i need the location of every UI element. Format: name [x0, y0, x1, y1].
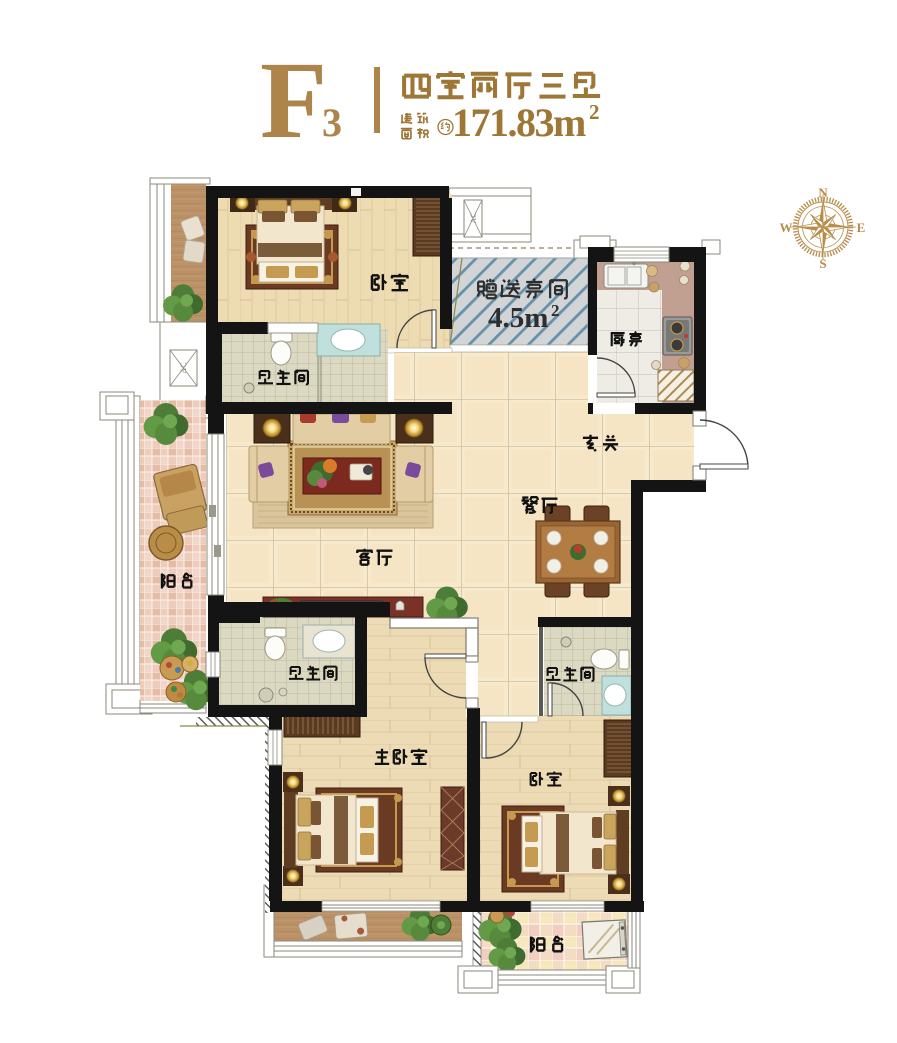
svg-text:2: 2 — [589, 100, 600, 124]
svg-text:N: N — [818, 185, 828, 200]
svg-text:4.5m: 4.5m — [488, 302, 548, 334]
svg-text:AC: AC — [469, 212, 478, 223]
svg-text:2: 2 — [551, 301, 560, 320]
svg-text:3: 3 — [322, 100, 342, 145]
svg-text:S: S — [819, 256, 826, 271]
svg-text:W: W — [780, 220, 793, 235]
svg-text:F: F — [260, 39, 327, 161]
svg-text:171.83m: 171.83m — [452, 100, 586, 145]
svg-text:AC: AC — [179, 362, 188, 373]
svg-text:E: E — [857, 220, 866, 235]
